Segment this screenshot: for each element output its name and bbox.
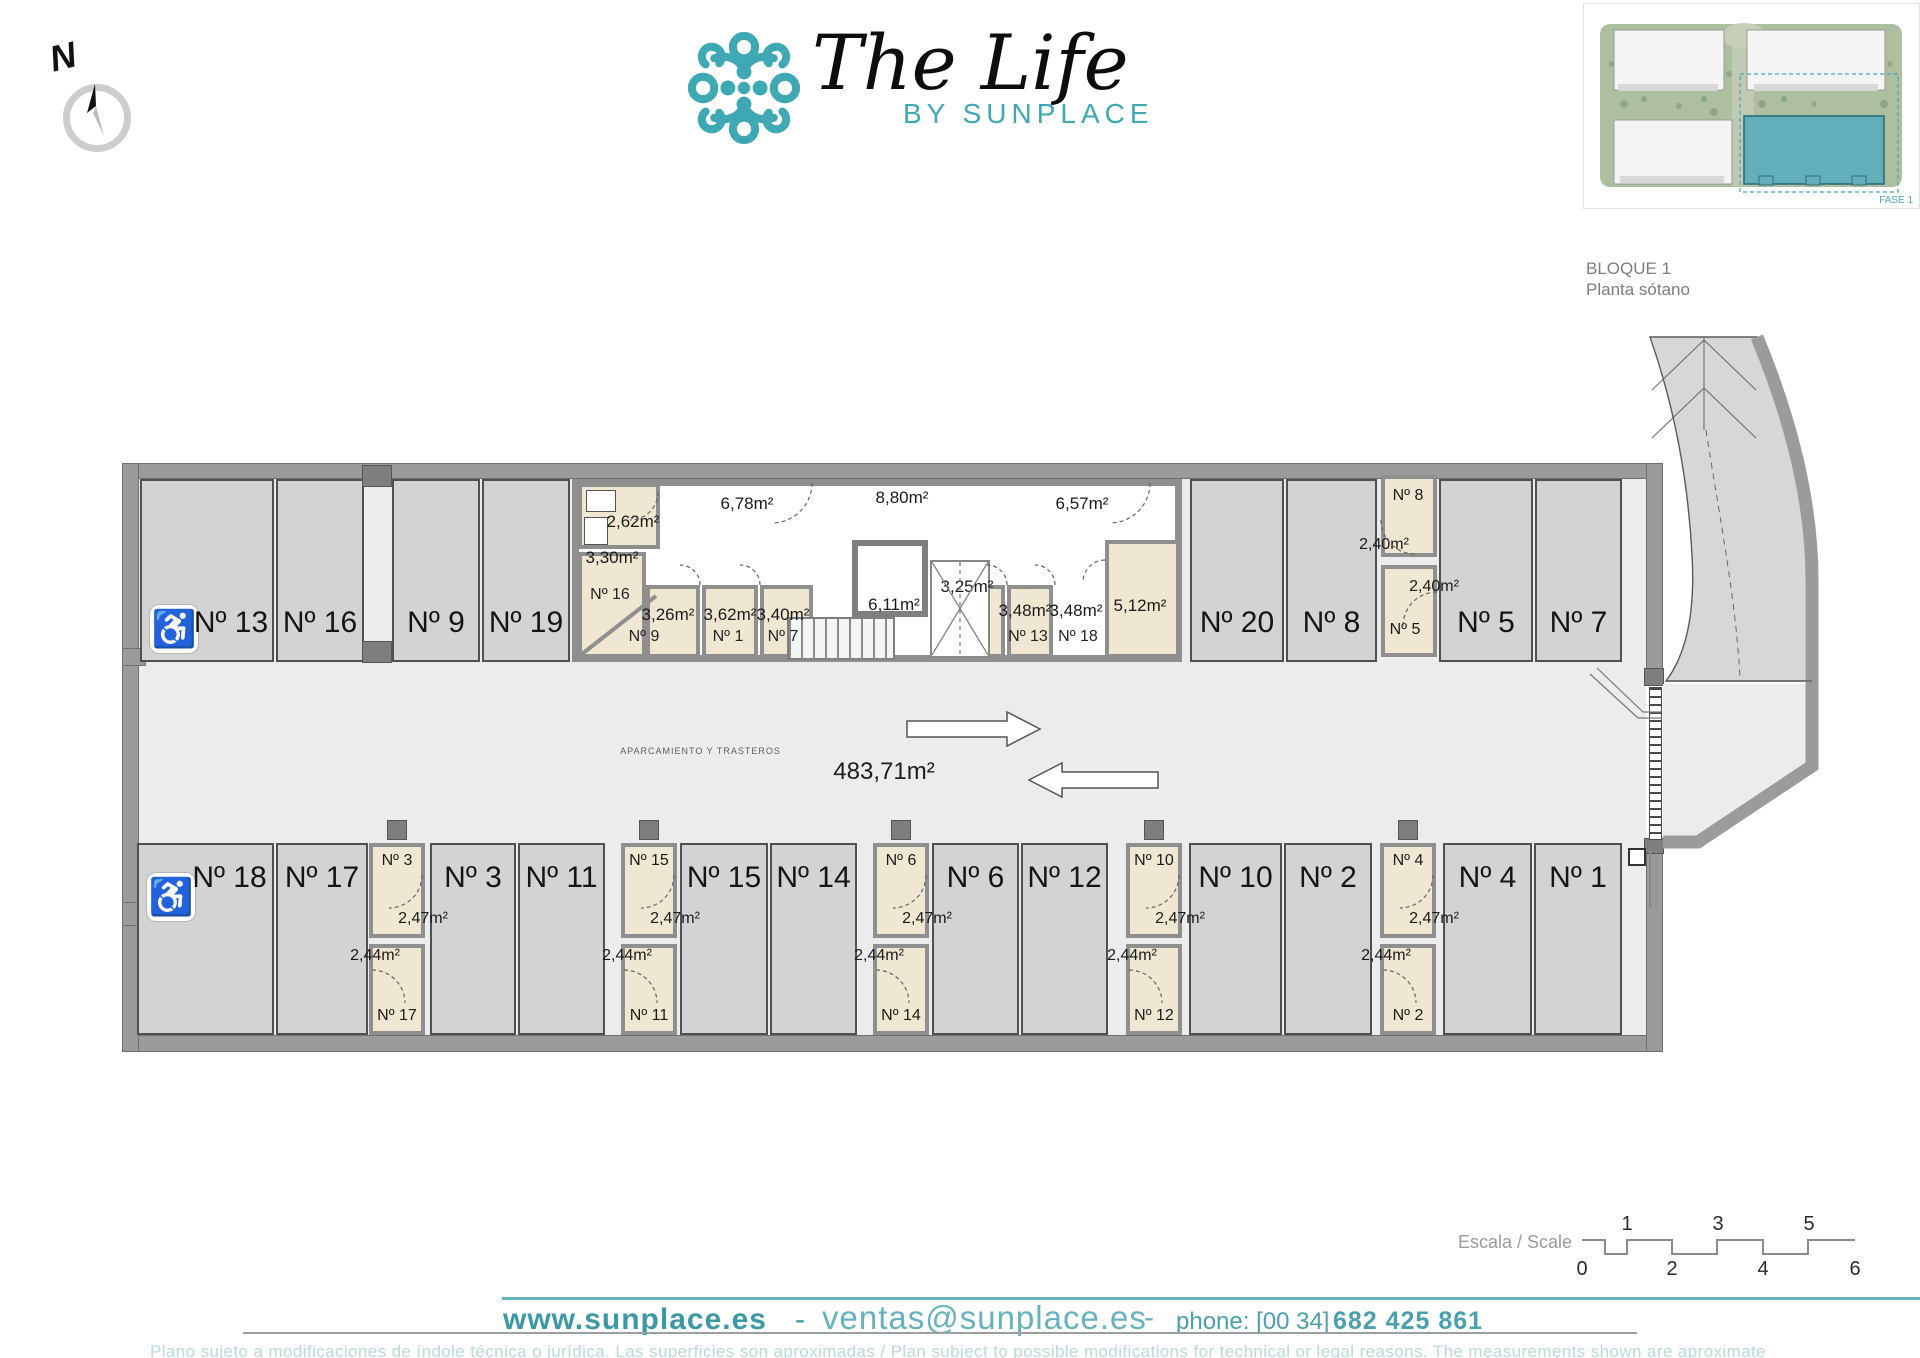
disclaimer-text: Plano sujeto a modificaciones de índole … [150,1342,1870,1358]
parking-stall-13: ♿ Nº 13 [140,479,274,662]
area-label: 2,40m² [1394,578,1474,596]
stall-label: Nº 2 [1286,861,1370,895]
area-label: 8,80m² [862,488,942,508]
parking-stall-14: Nº 14 [770,843,857,1035]
scale-tick: 0 [1567,1258,1597,1281]
wall-right-lower [1646,840,1663,1052]
stall-label: Nº 4 [1445,861,1530,895]
area-label: 2,44m² [587,947,667,965]
storage-name-label: Nº 5 [1365,621,1445,639]
parking-stall-10: Nº 10 [1189,843,1282,1035]
central-area-name: APARCAMIENTO Y TRASTEROS [598,746,803,756]
scale-tick: 1 [1612,1213,1642,1236]
area-label: 2,47m² [1394,910,1474,928]
area-label: 2,44m² [335,947,415,965]
floorplan-page: N The Life BY SUNPLACE [0,0,1920,1358]
stall-label: Nº 20 [1192,606,1282,640]
parking-stall-9: Nº 9 [392,479,480,662]
block-floor: Planta sótano [1586,279,1690,300]
area-label: 5,12m² [1100,596,1180,616]
wall-right-upper [1646,463,1663,685]
parking-stall-11: Nº 11 [518,843,605,1035]
stall-label: Nº 19 [484,606,568,640]
stall-label: Nº 6 [934,861,1017,895]
footer-rule-top [502,1297,1920,1300]
structural-column [891,820,911,840]
stall-label: Nº 9 [394,606,478,640]
storage-name-label: Nº 16 [570,586,650,604]
structural-column [1144,820,1164,840]
stall-label: Nº 18 [187,861,272,895]
storage-column-a: Nº 3 2,47m² 2,44m² Nº 17 [369,843,425,1035]
area-label: 2,44m² [839,947,919,965]
stall-label: Nº 10 [1191,861,1280,895]
storage-name-label: Nº 3 [357,852,437,870]
storage-name-label: Nº 18 [1038,628,1118,646]
central-area-value: 483,71m² [814,758,954,786]
area-label: 6,57m² [1042,494,1122,514]
stall-label: Nº 13 [190,606,272,640]
storage-column-d: Nº 10 2,47m² 2,44m² Nº 12 [1126,843,1182,1035]
storage-name-label: Nº 12 [1114,1007,1194,1025]
area-label: 2,47m² [887,910,967,928]
area-label: 2,40m² [1344,536,1424,554]
parking-stall-7: Nº 7 [1535,479,1622,662]
area-label: 3,25m² [927,577,1007,597]
area-label: 2,47m² [635,910,715,928]
area-label: 3,40m² [743,605,823,625]
parking-stall-17: Nº 17 [276,843,368,1035]
area-label: 2,47m² [383,910,463,928]
storage-name-label: Nº 10 [1114,852,1194,870]
storage-name-label: Nº 14 [861,1007,941,1025]
structural-column [1398,820,1418,840]
area-label: 2,44m² [1092,947,1172,965]
storage-column-top: Nº 8 2,40m² 2,40m² Nº 5 [1381,475,1437,657]
area-label: 6,11m² [854,595,934,615]
parking-stall-2: Nº 2 [1284,843,1372,1035]
scale-bar [1582,1240,1855,1254]
logo-subtitle: BY SUNPLACE [903,98,1154,130]
footer-separator: - [1144,1301,1154,1335]
storage-name-label: Nº 4 [1368,852,1448,870]
storage-name-label: Nº 15 [609,852,689,870]
structural-column [362,641,392,663]
parking-stall-6: Nº 6 [932,843,1019,1035]
door-icon [1628,848,1646,866]
storage-name-label: Nº 8 [1368,487,1448,505]
stair-landing [930,560,990,658]
area-label: 2,44m² [1346,947,1426,965]
storage-column-e: Nº 4 2,47m² 2,44m² Nº 2 [1380,843,1436,1035]
stall-label: Nº 17 [278,861,366,895]
structural-column [639,820,659,840]
structural-column [387,820,407,840]
storage-column-b: Nº 15 2,47m² 2,44m² Nº 11 [621,843,677,1035]
site-plan-thumbnail: FASE 1 [1583,3,1920,209]
stall-label: Nº 8 [1288,606,1375,640]
storage-name-label: Nº 2 [1368,1007,1448,1025]
wall-bottom [122,1035,1663,1052]
parking-stall-18: ♿ Nº 18 [137,843,274,1035]
scale-tick: 3 [1703,1213,1733,1236]
scale-tick: 2 [1657,1258,1687,1281]
block-title: BLOQUE 1 [1586,258,1690,279]
area-label: 2,47m² [1140,910,1220,928]
stall-label: Nº 1 [1536,861,1620,895]
scale-tick: 4 [1748,1258,1778,1281]
area-label: 3,30m² [572,548,652,568]
stall-label: Nº 15 [682,861,766,895]
storage-name-label: Nº 17 [357,1007,437,1025]
logo-title: The Life [812,18,1129,107]
scale-tick: 6 [1840,1258,1870,1281]
scale-label: Escala / Scale [1452,1232,1572,1253]
structural-column [362,465,392,487]
structural-column [1644,838,1664,854]
parking-stall-8: Nº 8 [1286,479,1377,662]
parking-stall-19: Nº 19 [482,479,570,662]
stall-label: Nº 7 [1537,606,1620,640]
stall-label: Nº 5 [1441,606,1531,640]
parking-stall-3: Nº 3 [430,843,516,1035]
compass-north-label: N [45,33,80,80]
storage-name-label: Nº 11 [609,1007,689,1025]
footer-rule-bottom [243,1332,1637,1334]
stall-label: Nº 14 [772,861,855,895]
area-label: 6,78m² [707,494,787,514]
fixture-icon [586,490,616,512]
storage-room-18 [1007,585,1053,658]
parking-stall-5: Nº 5 [1439,479,1533,662]
parking-stall-4: Nº 4 [1443,843,1532,1035]
sunplace-logo-knot-icon [682,26,806,150]
stall-label: Nº 12 [1023,861,1106,895]
stall-label: Nº 16 [278,606,362,640]
stall-label: Nº 11 [520,861,603,895]
parking-stall-16: Nº 16 [276,479,364,662]
compass-icon [63,84,131,152]
storage-column-c: Nº 6 2,47m² 2,44m² Nº 14 [873,843,929,1035]
storage-name-label: Nº 6 [861,852,941,870]
parking-stall-12: Nº 12 [1021,843,1108,1035]
parking-stall-20: Nº 20 [1190,479,1284,662]
block-info: BLOQUE 1 Planta sótano [1586,258,1690,301]
parking-stall-1: Nº 1 [1534,843,1622,1035]
parking-stall-15: Nº 15 [680,843,768,1035]
stall-label: Nº 3 [432,861,514,895]
ramp-grating [1649,687,1662,840]
fase-1-label: FASE 1 [1879,195,1913,206]
scale-tick: 5 [1794,1213,1824,1236]
area-label: 2,62m² [593,512,673,532]
structural-column [1644,668,1664,686]
storage-name-label: Nº 7 [743,628,823,646]
storage-name-label: Nº 9 [604,628,684,646]
